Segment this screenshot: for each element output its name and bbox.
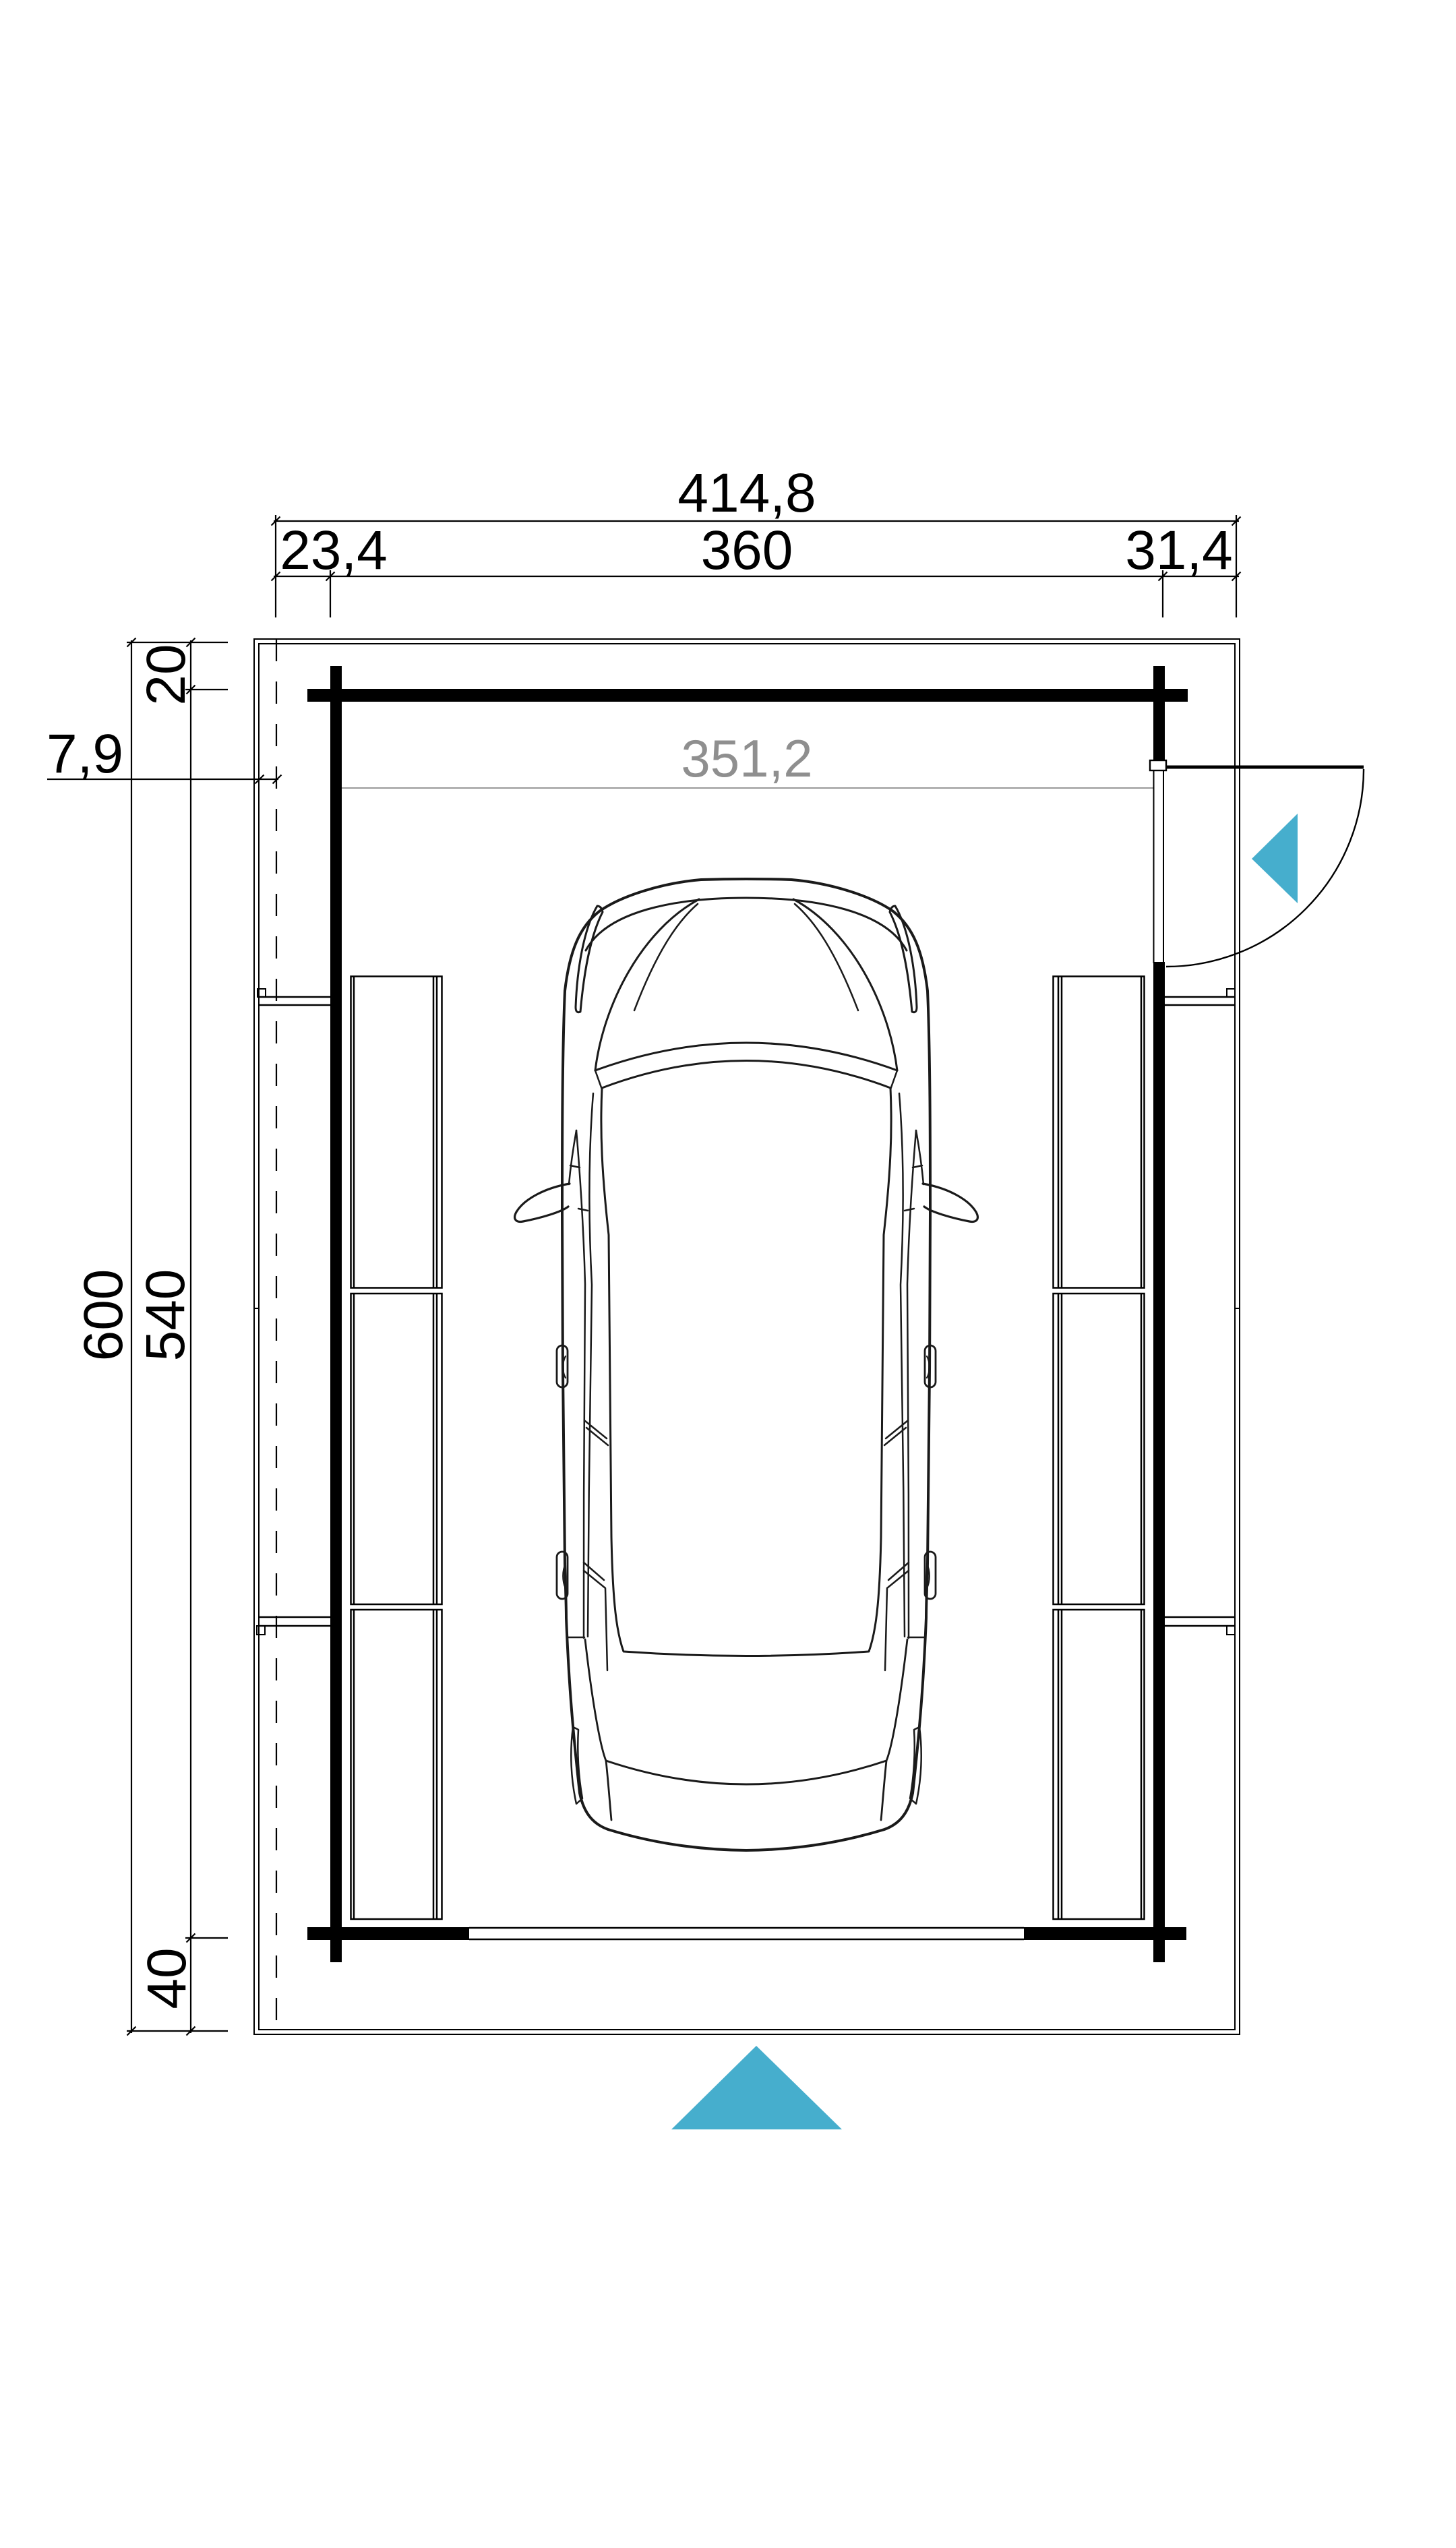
svg-text:600: 600 (73, 1269, 134, 1362)
svg-text:40: 40 (136, 1947, 198, 2009)
svg-text:31,4: 31,4 (1125, 520, 1233, 581)
svg-text:7,9: 7,9 (47, 723, 123, 785)
svg-text:414,8: 414,8 (677, 462, 816, 524)
svg-text:351,2: 351,2 (681, 729, 812, 788)
svg-text:360: 360 (701, 520, 793, 581)
svg-text:540: 540 (135, 1269, 196, 1362)
svg-text:20: 20 (135, 644, 197, 705)
svg-text:23,4: 23,4 (280, 520, 388, 581)
